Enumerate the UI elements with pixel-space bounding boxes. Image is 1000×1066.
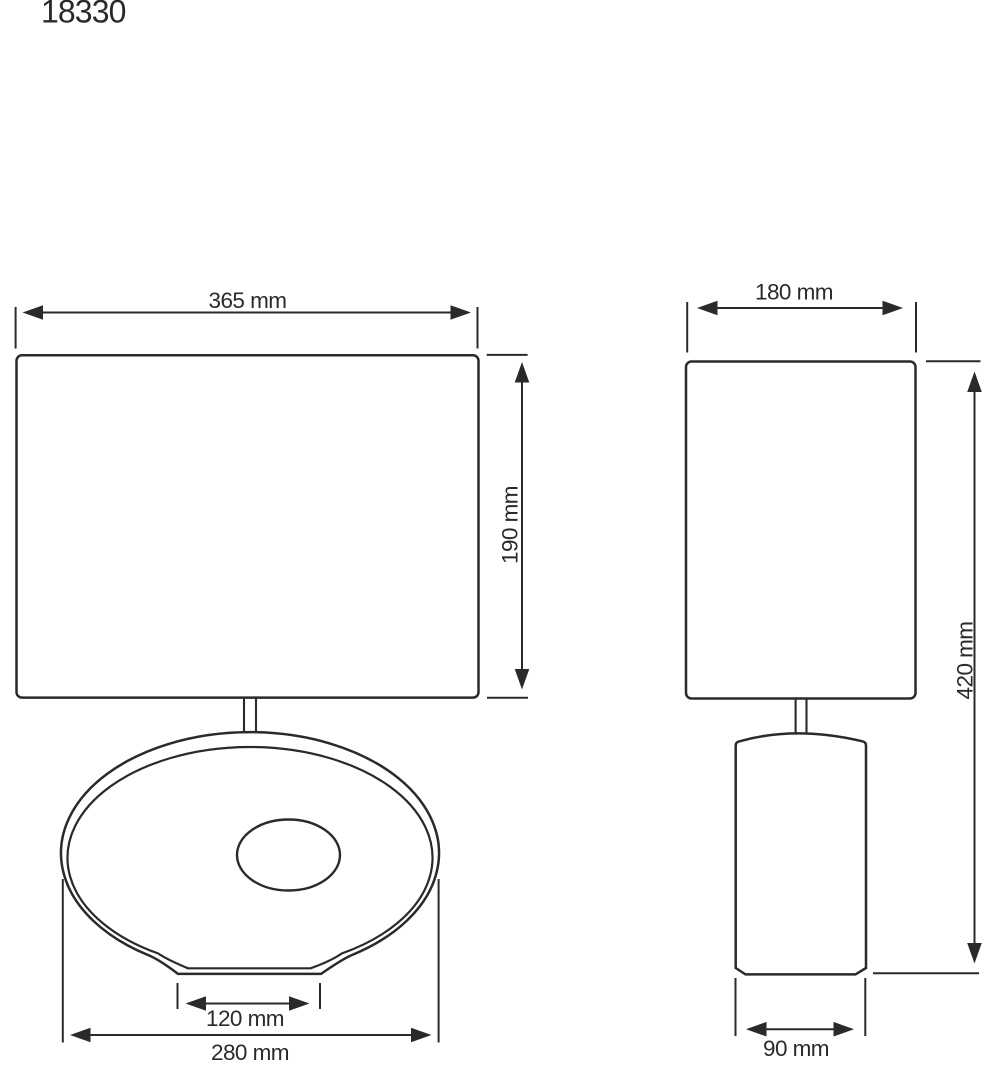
svg-text:90 mm: 90 mm [763,1036,829,1061]
svg-text:280 mm: 280 mm [211,1040,289,1065]
svg-text:190 mm: 190 mm [498,486,523,564]
svg-text:180 mm: 180 mm [755,280,833,305]
svg-text:365 mm: 365 mm [209,288,287,313]
svg-text:18330: 18330 [41,0,126,30]
svg-text:420 mm: 420 mm [953,622,978,700]
svg-text:120 mm: 120 mm [206,1006,284,1031]
